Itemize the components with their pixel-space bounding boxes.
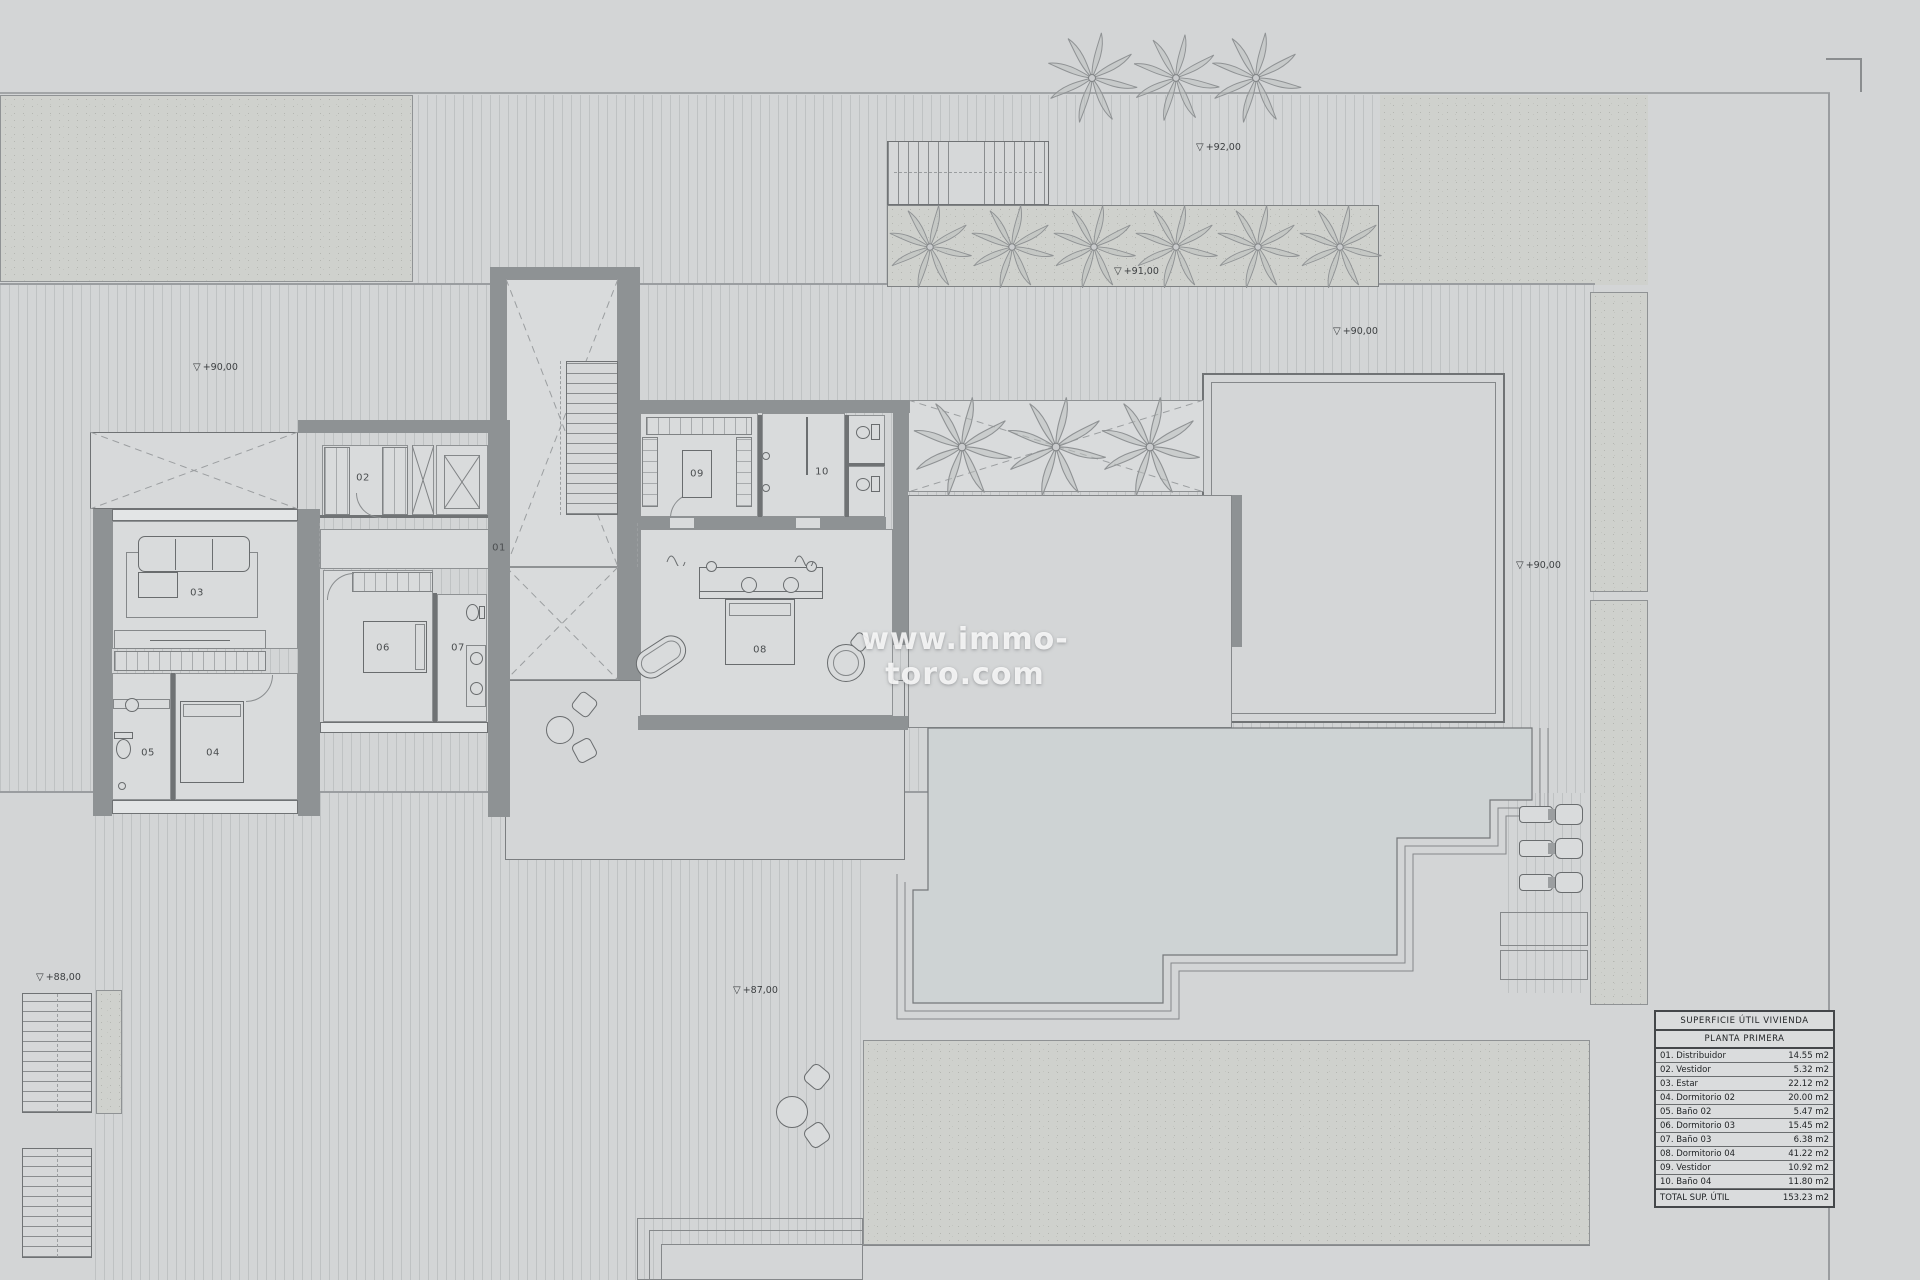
- level-triangle-icon: ▽: [1114, 266, 1122, 277]
- shower-screen: [806, 417, 808, 475]
- total-name: TOTAL SUP. ÚTIL: [1660, 1193, 1729, 1203]
- vanity-island: [699, 567, 823, 599]
- sink: [783, 577, 799, 593]
- area-table-title: SUPERFICIE ÚTIL VIVIENDA: [1656, 1012, 1833, 1031]
- toilet-tank: [479, 606, 485, 619]
- table-row: 08. Dormitorio 0441.22 m2: [1656, 1147, 1833, 1161]
- level-triangle-icon: ▽: [1516, 560, 1524, 571]
- skylight-cross: [90, 432, 298, 509]
- vase: [706, 561, 717, 572]
- elevation-value: +92,00: [1206, 142, 1241, 153]
- corner-mark-h: [1826, 58, 1862, 60]
- row-area: 5.47 m2: [1794, 1107, 1829, 1117]
- gravel-terrace-top-left: [0, 95, 413, 282]
- corner-mark-v: [1860, 58, 1862, 92]
- table-row: 02. Vestidor5.32 m2: [1656, 1063, 1833, 1077]
- stair-direction-line: [894, 172, 1042, 173]
- sink: [470, 652, 483, 665]
- row-name: 06. Dormitorio 03: [1660, 1121, 1735, 1131]
- room-label-08: 08: [753, 645, 767, 656]
- elevation-value: +90,00: [203, 362, 238, 373]
- level-triangle-icon: ▽: [733, 985, 741, 996]
- row-area: 11.80 m2: [1788, 1177, 1829, 1187]
- wall-corridor-top: [320, 515, 488, 518]
- elevation-marker: ▽+88,00: [36, 972, 81, 983]
- roof-inner-line: [1211, 382, 1496, 714]
- total-area: 153.23 m2: [1783, 1193, 1829, 1203]
- level-triangle-icon: ▽: [36, 972, 44, 983]
- wall-suite-east: [893, 400, 908, 645]
- row-area: 15.45 m2: [1788, 1121, 1829, 1131]
- bed-dorm03: [363, 621, 427, 673]
- wall-tower-west: [490, 267, 506, 521]
- row-name: 01. Distribuidor: [1660, 1051, 1726, 1061]
- wall-jamb: [298, 800, 320, 816]
- stair-flight: [984, 142, 1048, 204]
- terrace-strip-bottom: [863, 1245, 1590, 1280]
- elevation-marker: ▽+91,00: [1114, 266, 1159, 277]
- table-total-row: TOTAL SUP. ÚTIL153.23 m2: [1656, 1189, 1833, 1206]
- vanity-counter: [113, 699, 170, 709]
- elevation-marker: ▽+90,00: [193, 362, 238, 373]
- room-label-03: 03: [190, 588, 204, 599]
- wall-10-wc: [845, 415, 849, 517]
- door-opening: [796, 518, 820, 528]
- gravel-strip-right-lower: [1590, 600, 1648, 1005]
- sofa-seam: [212, 539, 213, 570]
- tap: [762, 484, 770, 492]
- gravel-top-right: [1380, 95, 1648, 285]
- patio-wall: [1232, 495, 1242, 647]
- room-label-09: 09: [690, 469, 704, 480]
- area-table: SUPERFICIE ÚTIL VIVIENDA PLANTA PRIMERA …: [1654, 1010, 1835, 1208]
- row-name: 10. Baño 04: [1660, 1177, 1711, 1187]
- counter-edge: [700, 591, 822, 592]
- wall-tower-east: [618, 267, 640, 680]
- toilet-bowl: [856, 478, 870, 491]
- room-label-04: 04: [206, 748, 220, 759]
- row-area: 5.32 m2: [1794, 1065, 1829, 1075]
- stair-direction-line: [57, 1149, 58, 1257]
- row-name: 09. Vestidor: [1660, 1163, 1711, 1173]
- shaft-cross: [412, 445, 434, 515]
- corridor-dash: [637, 523, 638, 567]
- sideboard: [114, 630, 266, 649]
- stairs-garden-upper: [22, 993, 92, 1113]
- appliance-cross: [444, 455, 480, 509]
- toilet-tank: [871, 476, 880, 492]
- elevation-value: +91,00: [1124, 266, 1159, 277]
- palm-tree-icon: [1212, 201, 1304, 293]
- wall-09-10: [758, 415, 762, 517]
- room-label-05: 05: [141, 748, 155, 759]
- closet-vestidor-left: [324, 447, 350, 515]
- deck-bottom: [95, 793, 863, 1280]
- table-row: 01. Distribuidor14.55 m2: [1656, 1049, 1833, 1063]
- room-label-10: 10: [815, 467, 829, 478]
- closet-vestidor-right: [382, 447, 408, 515]
- palm-tree-icon: [1042, 28, 1142, 128]
- level-triangle-icon: ▽: [1333, 326, 1341, 337]
- palm-tree-icon: [1130, 201, 1222, 293]
- curtain-mark: [794, 552, 816, 566]
- palm-tree-icon: [1294, 201, 1386, 293]
- elevation-value: +88,00: [46, 972, 81, 983]
- wall-suite-south: [638, 716, 908, 730]
- stair-flight: [888, 142, 952, 204]
- closet-dorm03: [352, 572, 433, 592]
- elevation-marker: ▽+90,00: [1333, 326, 1378, 337]
- deck-step: [1500, 912, 1588, 946]
- row-name: 04. Dormitorio 02: [1660, 1093, 1735, 1103]
- sun-lounger: [1555, 804, 1583, 825]
- door-opening: [670, 518, 694, 528]
- row-name: 03. Estar: [1660, 1079, 1698, 1089]
- room-label-06: 06: [376, 643, 390, 654]
- corridor-dash: [319, 523, 320, 567]
- deck-step: [1500, 950, 1588, 980]
- tap: [762, 452, 770, 460]
- stair-direction-line: [57, 994, 58, 1112]
- level-triangle-icon: ▽: [193, 362, 201, 373]
- elevation-value: +90,00: [1343, 326, 1378, 337]
- room-bano-04: [762, 413, 845, 517]
- sun-lounger: [1555, 872, 1583, 893]
- elevation-value: +90,00: [1526, 560, 1561, 571]
- row-area: 6.38 m2: [1794, 1135, 1829, 1145]
- row-area: 41.22 m2: [1788, 1149, 1829, 1159]
- row-name: 05. Baño 02: [1660, 1107, 1711, 1117]
- gravel-strip-stairs: [96, 990, 122, 1114]
- window-estar-north: [112, 509, 298, 521]
- closet-vestidor09-left: [642, 437, 658, 507]
- pillows: [415, 624, 425, 670]
- window-dorm02-south: [112, 800, 298, 814]
- row-area: 22.12 m2: [1788, 1079, 1829, 1089]
- row-name: 02. Vestidor: [1660, 1065, 1711, 1075]
- void-cross: [506, 567, 618, 680]
- gravel-zone-bottom-right: [863, 1040, 1590, 1245]
- level-triangle-icon: ▽: [1196, 142, 1204, 153]
- pillows: [183, 704, 241, 717]
- row-area: 20.00 m2: [1788, 1093, 1829, 1103]
- sofa: [138, 536, 250, 572]
- row-name: 08. Dormitorio 04: [1660, 1149, 1735, 1159]
- wall-06-07: [433, 593, 437, 722]
- toilet-tank: [871, 424, 880, 440]
- roof-volume: [1202, 373, 1505, 723]
- table-row: 05. Baño 025.47 m2: [1656, 1105, 1833, 1119]
- sun-lounger: [1555, 838, 1583, 859]
- table-row: 04. Dormitorio 0220.00 m2: [1656, 1091, 1833, 1105]
- curtain-mark: [666, 552, 688, 566]
- closet-vestidor09-right: [736, 437, 752, 507]
- sideboard-line: [150, 640, 230, 641]
- wall-wc-divider: [847, 463, 885, 466]
- palm-tree-icon: [1048, 201, 1140, 293]
- elevation-value: +87,00: [743, 985, 778, 996]
- row-area: 14.55 m2: [1788, 1051, 1829, 1061]
- watermark: www.immo-toro.com: [805, 622, 1125, 692]
- palm-tree-icon: [1206, 28, 1306, 128]
- sink: [125, 698, 139, 712]
- toilet-bowl: [116, 739, 131, 759]
- wall-04-05: [171, 673, 175, 800]
- bistro-table: [546, 716, 574, 744]
- pool-terrace: [880, 720, 1580, 1040]
- table-row: 03. Estar22.12 m2: [1656, 1077, 1833, 1091]
- room-label-01: 01: [492, 543, 506, 554]
- row-name: 07. Baño 03: [1660, 1135, 1711, 1145]
- pillows: [729, 603, 791, 616]
- table-row: 09. Vestidor10.92 m2: [1656, 1161, 1833, 1175]
- table-row: 07. Baño 036.38 m2: [1656, 1133, 1833, 1147]
- wall-jamb: [93, 800, 112, 816]
- wall-west: [93, 509, 112, 816]
- frame-line-top: [0, 92, 1830, 94]
- room-label-02: 02: [356, 473, 370, 484]
- table-row: 06. Dormitorio 0315.45 m2: [1656, 1119, 1833, 1133]
- wall-mid-left-wing: [298, 509, 320, 816]
- toilet-tank: [114, 732, 133, 739]
- stairs-top: [887, 141, 1049, 205]
- stairs-garden-lower: [22, 1148, 92, 1258]
- palm-tree-icon: [966, 201, 1058, 293]
- bistro-table: [776, 1096, 808, 1128]
- gravel-strip-right-upper: [1590, 292, 1648, 592]
- elevation-marker: ▽+87,00: [733, 985, 778, 996]
- wall-tower-north: [490, 267, 640, 279]
- toilet-bowl: [466, 604, 479, 621]
- window-dorm03-south: [320, 722, 488, 733]
- palm-tree-icon: [884, 201, 976, 293]
- sofa-chaise: [138, 572, 178, 598]
- sofa-seam: [175, 539, 176, 570]
- stair-direction-line: [560, 361, 561, 515]
- room-label-07: 07: [451, 643, 465, 654]
- patio-floor: [908, 495, 1232, 728]
- drain: [118, 782, 126, 790]
- row-area: 10.92 m2: [1788, 1163, 1829, 1173]
- elevation-marker: ▽+92,00: [1196, 142, 1241, 153]
- closet-estar: [114, 651, 266, 671]
- area-table-subtitle: PLANTA PRIMERA: [1656, 1031, 1833, 1049]
- elevation-marker: ▽+90,00: [1516, 560, 1561, 571]
- bed-dorm02: [180, 701, 244, 783]
- toilet-bowl: [856, 426, 870, 439]
- floor-plan-canvas: 01 02 03 04 05 06 07 08 09 10 ▽+90,00 ▽+…: [0, 0, 1920, 1280]
- sink: [470, 682, 483, 695]
- stairs-interior: [566, 361, 618, 515]
- palm-tree-icon: [1095, 392, 1205, 502]
- table-row: 10. Baño 0411.80 m2: [1656, 1175, 1833, 1189]
- closet-vestidor09-top: [646, 417, 752, 435]
- wall-suite-north: [638, 400, 910, 413]
- terrace-step-3: [661, 1244, 863, 1280]
- sink: [741, 577, 757, 593]
- wall-top-row: [298, 420, 510, 433]
- wall-void-west: [490, 567, 506, 680]
